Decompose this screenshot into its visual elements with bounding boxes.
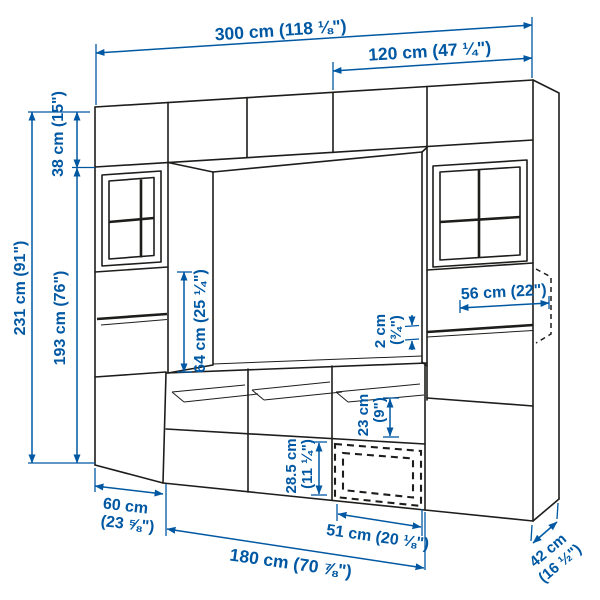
shelf-thickness-imperial-label: (¾") [388, 315, 405, 345]
top-cabinets [95, 87, 533, 168]
right-shelf [427, 325, 533, 332]
bench-shelf-1 [172, 385, 258, 402]
drawer-front-height-imperial-label: (11 ¼") [299, 439, 316, 489]
shelf-width-label: 56 cm (22") [460, 282, 547, 303]
tv-bench-width-label: 180 cm (70 ⅞") [228, 545, 353, 582]
tv-opening-height-label: 64 cm (25 ¼") [192, 269, 209, 373]
total-width-label: 300 cm (118 ⅛") [214, 16, 347, 45]
shelf-thickness-label: 2 cm [372, 314, 389, 348]
dimension-total-width: 300 cm (118 ⅛") [96, 16, 532, 105]
top-cabinet-height-label: 38 cm (15") [50, 91, 67, 177]
dimension-drawer-width: 51 cm (20 ⅛") [325, 504, 430, 553]
dimension-depth: 42 cm (16 ½") [526, 503, 585, 586]
dimension-shelf-width: 56 cm (22") [460, 282, 549, 313]
left-column [95, 163, 168, 484]
dimension-shelf-thickness: 2 cm (¾") [372, 314, 419, 350]
open-compartment-label: 23 cm [355, 394, 372, 437]
dimension-annotations: 300 cm (118 ⅛") 120 cm (47 ¼") 231 cm (9… [12, 16, 585, 587]
furniture-diagram: 300 cm (118 ⅛") 120 cm (47 ¼") 231 cm (9… [0, 0, 600, 600]
dimension-side-cabinet-width: 60 cm (23 ⅝") [95, 468, 166, 536]
open-compartment-imperial-label: (9") [371, 397, 388, 422]
diagram-page: 300 cm (118 ⅛") 120 cm (47 ¼") 231 cm (9… [0, 0, 600, 600]
right-section-width-label: 120 cm (47 ¼") [368, 37, 492, 64]
dimension-open-compartment-height: 23 cm (9") [355, 394, 399, 437]
dimension-top-cabinet-height: 38 cm (15") [50, 91, 95, 177]
bench-shelf-2 [252, 382, 342, 400]
dimension-cabinet-height: 193 cm (76") [52, 168, 77, 463]
left-shelf [97, 314, 167, 319]
cabinet-height-label: 193 cm (76") [52, 271, 69, 366]
dimension-drawer-front-height: 28.5 cm (11 ¼") [283, 438, 327, 495]
drawer-front-height-label: 28.5 cm [283, 438, 300, 493]
total-height-label: 231 cm (91") [12, 241, 29, 336]
dimension-tv-opening-height: 64 cm (25 ¼") [177, 269, 209, 373]
